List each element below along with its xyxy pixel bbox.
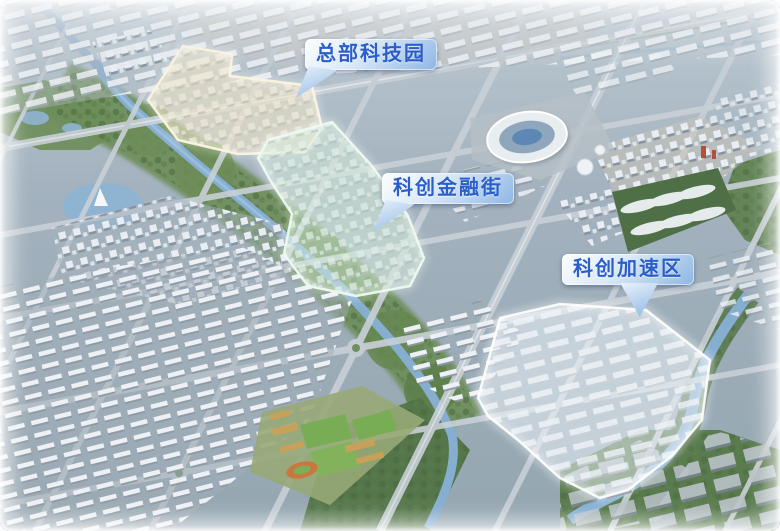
aerial-city-render: 总部科技园 科创金融街 科创加速区 bbox=[0, 0, 780, 531]
zone-label-text: 科创金融街 bbox=[393, 177, 503, 199]
zone-label-sci-tech-finance-street: 科创金融街 bbox=[382, 173, 514, 204]
zone-label-text: 总部科技园 bbox=[316, 43, 426, 65]
zone-label-headquarters-tech-park: 总部科技园 bbox=[305, 39, 437, 70]
zone-label-text: 科创加速区 bbox=[573, 258, 683, 280]
zone-label-sci-tech-acceleration-zone: 科创加速区 bbox=[562, 254, 694, 285]
